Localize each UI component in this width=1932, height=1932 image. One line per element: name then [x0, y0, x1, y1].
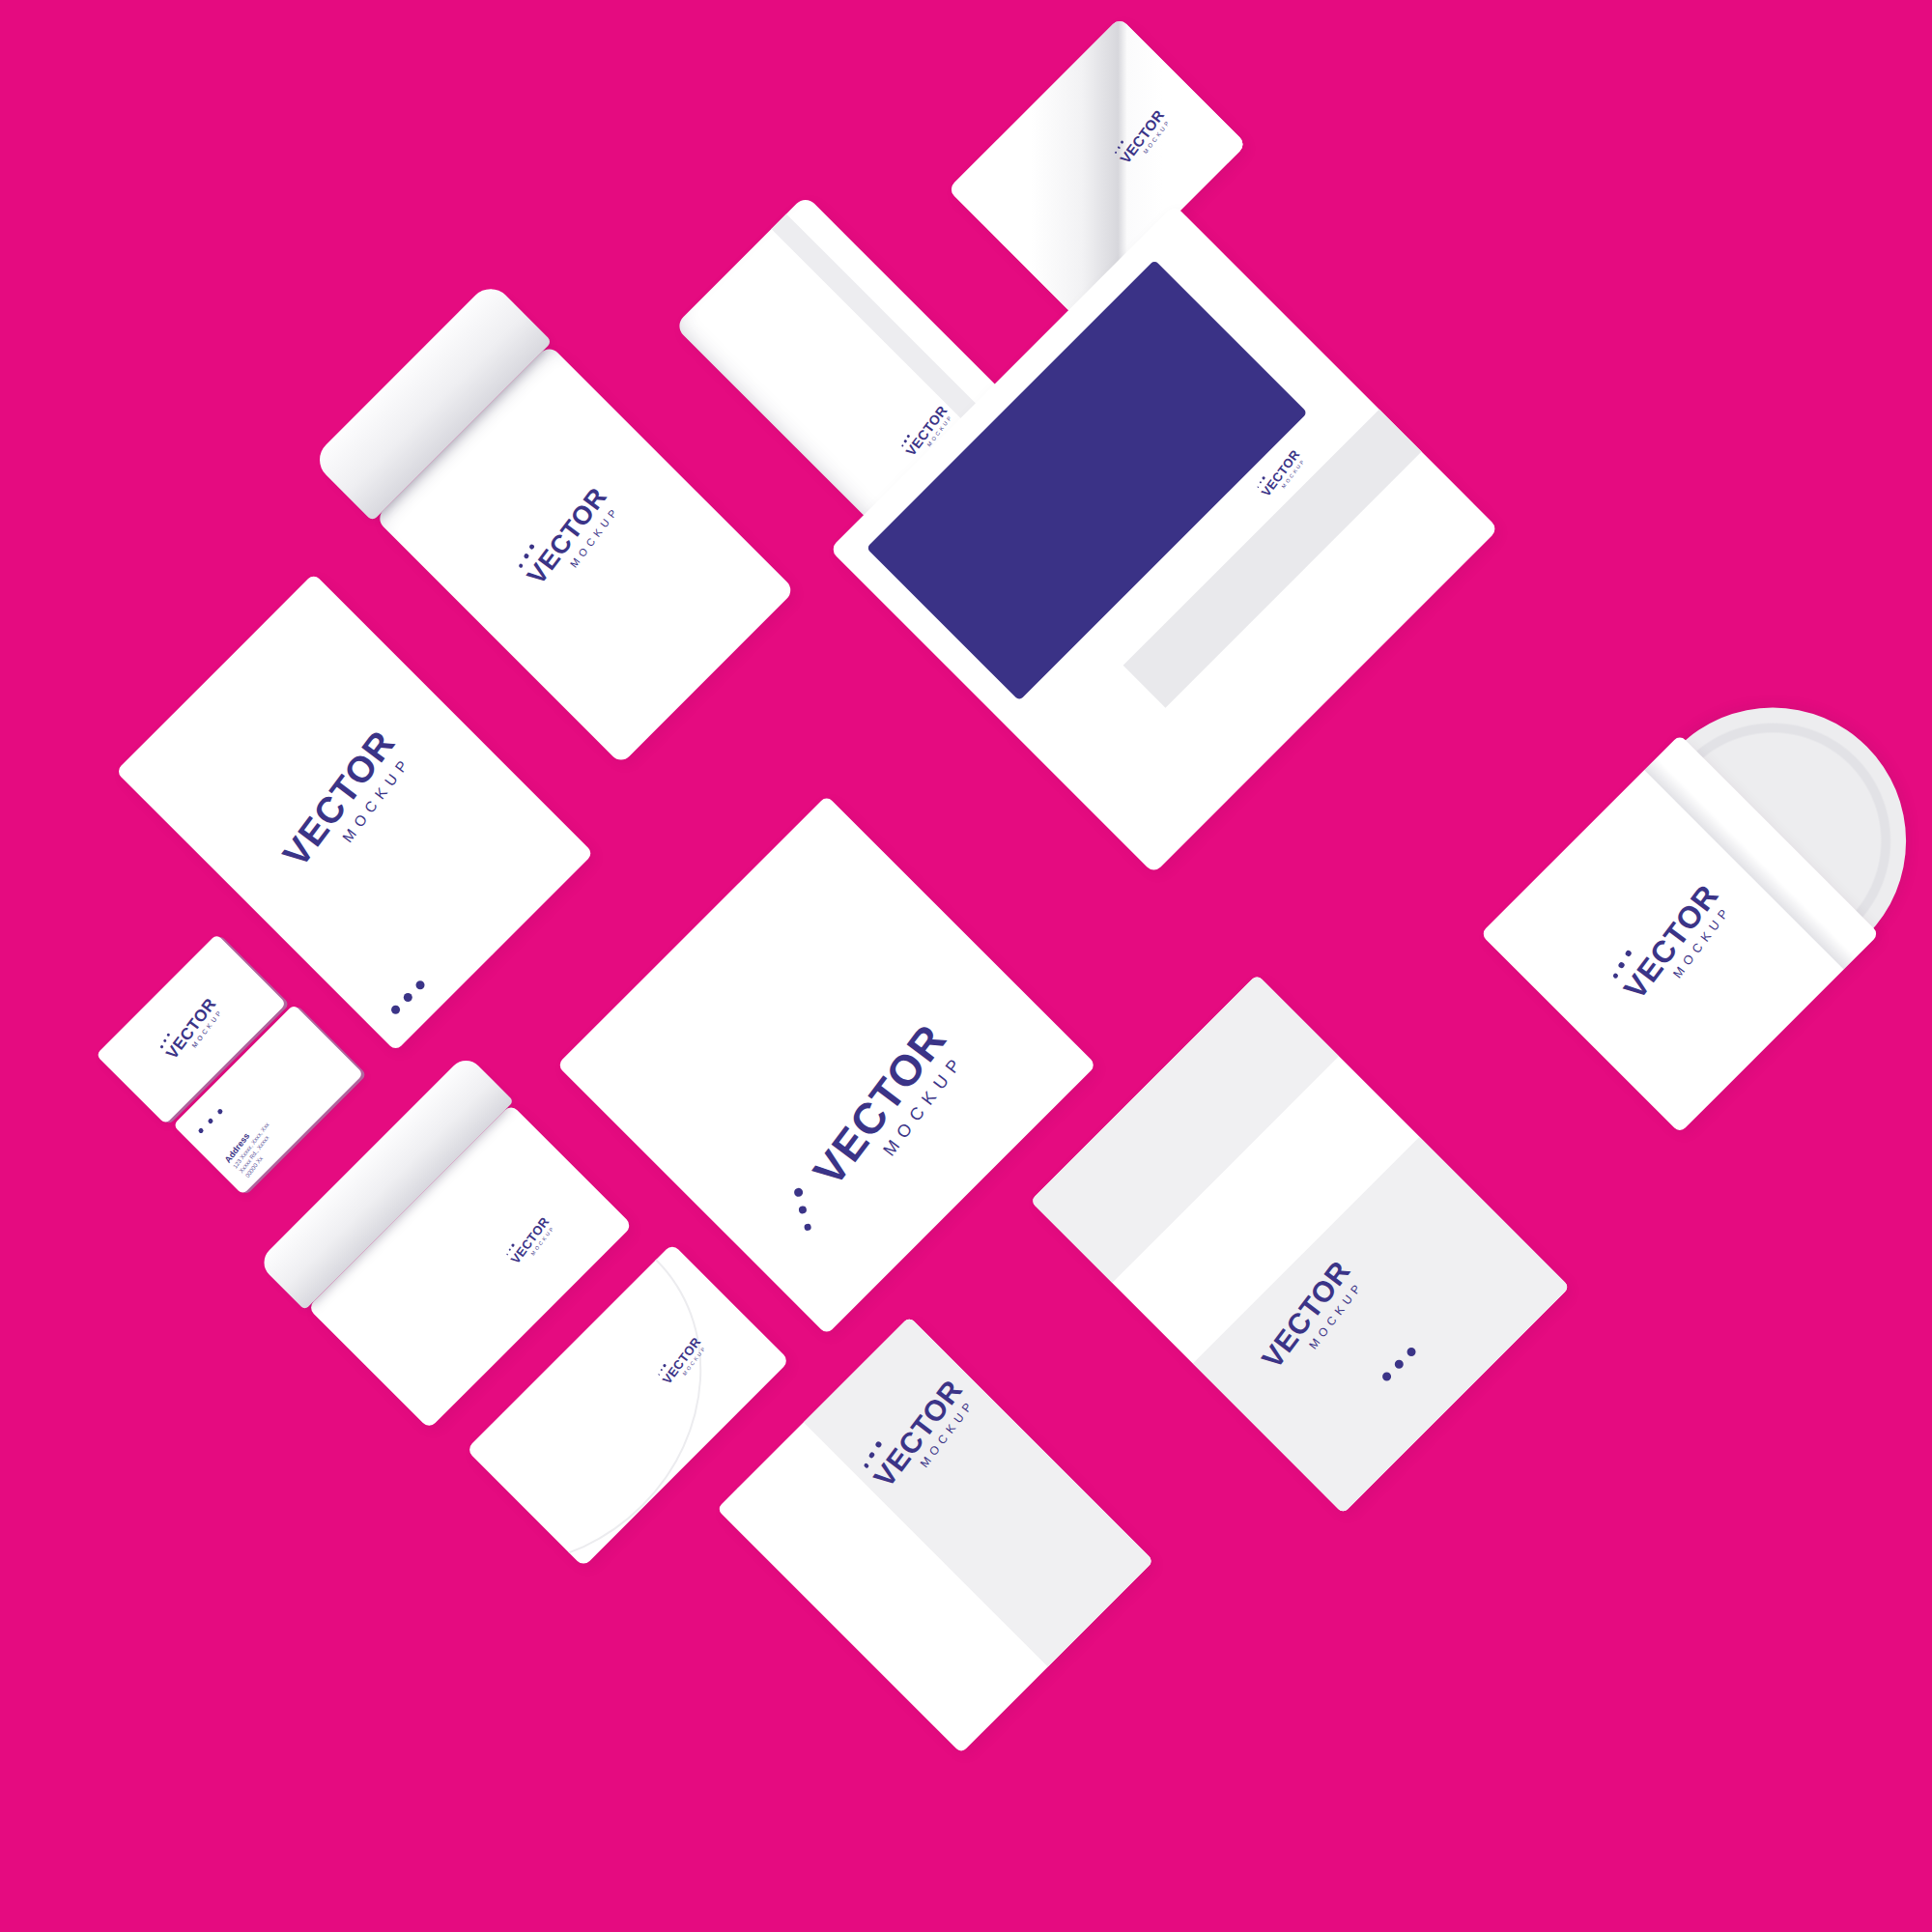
- fold-shaded-panel: [804, 1317, 1154, 1667]
- square-sheet: VECTOR MOCKUP: [556, 795, 1096, 1335]
- card-dots-icon: [198, 1108, 224, 1134]
- rotated-stage: VECTOR MOCKUP VECTOR MOCKUP VECTOR MOCKU…: [0, 0, 1932, 1932]
- envelope-seam-icon: [771, 213, 999, 441]
- fold-band-bottom: [1193, 1137, 1570, 1514]
- fold-band-top: [1030, 974, 1339, 1283]
- presentation-folder: VECTOR MOCKUP: [830, 205, 1499, 874]
- folded-letterhead: VECTOR MOCKUP: [717, 1317, 1154, 1754]
- brand-logo: VECTOR MOCKUP: [276, 724, 416, 884]
- brand-logo: VECTOR MOCKUP: [156, 991, 225, 1067]
- logo-dots-icon: [793, 1186, 808, 1231]
- footer-dots-icon: [389, 979, 426, 1015]
- brand-logo: VECTOR MOCKUP: [806, 1016, 972, 1207]
- brand-logo: VECTOR MOCKUP: [503, 1211, 555, 1269]
- address-block: Address 123 Xxxxx, Xxxx, Xxx Xxxxx Rd., …: [222, 1115, 283, 1179]
- mockup-scene: { "canvas": { "background_color": "#e50b…: [0, 0, 1932, 1932]
- brand-logo: VECTOR MOCKUP: [1607, 870, 1737, 1014]
- trifold-sheet: VECTOR MOCKUP: [1030, 974, 1570, 1514]
